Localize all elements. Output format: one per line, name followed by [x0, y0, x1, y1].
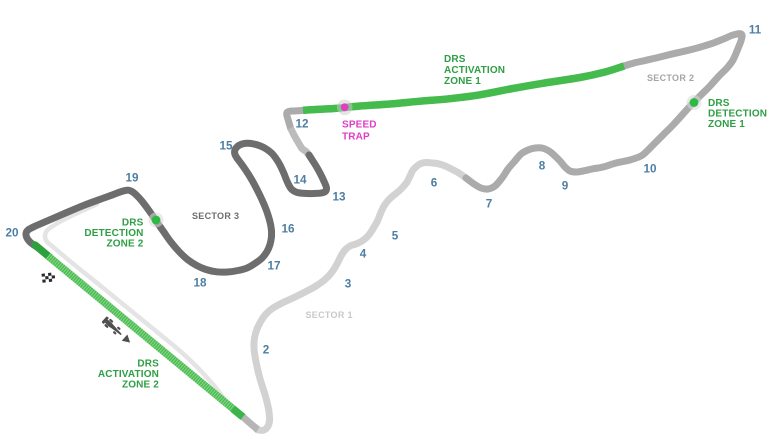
- svg-text:8: 8: [539, 159, 546, 172]
- svg-text:TRAP: TRAP: [342, 131, 370, 142]
- svg-text:19: 19: [125, 171, 139, 184]
- svg-text:12: 12: [295, 117, 309, 130]
- svg-text:10: 10: [643, 162, 657, 175]
- svg-text:DETECTION: DETECTION: [708, 109, 767, 120]
- svg-text:11: 11: [749, 23, 762, 36]
- svg-text:3: 3: [345, 277, 352, 290]
- svg-text:DRS: DRS: [137, 359, 159, 370]
- svg-text:6: 6: [431, 176, 438, 189]
- svg-text:ZONE 1: ZONE 1: [444, 76, 481, 87]
- svg-text:20: 20: [5, 226, 19, 239]
- svg-text:ZONE 2: ZONE 2: [122, 380, 159, 391]
- svg-text:17: 17: [267, 259, 280, 272]
- svg-text:9: 9: [562, 179, 569, 192]
- svg-text:SECTOR 3: SECTOR 3: [192, 211, 239, 221]
- svg-text:15: 15: [219, 139, 233, 152]
- svg-text:ZONE 1: ZONE 1: [708, 119, 745, 130]
- svg-text:7: 7: [486, 197, 493, 210]
- svg-text:SECTOR 2: SECTOR 2: [647, 73, 694, 83]
- svg-text:SECTOR 1: SECTOR 1: [306, 310, 353, 320]
- svg-text:ZONE 2: ZONE 2: [106, 238, 143, 249]
- svg-text:DRS: DRS: [708, 98, 730, 109]
- svg-text:13: 13: [332, 190, 346, 203]
- svg-text:SPEED: SPEED: [342, 119, 377, 130]
- svg-text:16: 16: [281, 222, 295, 235]
- svg-text:DRS: DRS: [444, 54, 466, 65]
- svg-text:ACTIVATION: ACTIVATION: [444, 65, 505, 76]
- svg-text:DRS: DRS: [122, 218, 144, 229]
- svg-text:ACTIVATION: ACTIVATION: [98, 369, 159, 380]
- svg-text:2: 2: [263, 343, 270, 356]
- svg-text:DETECTION: DETECTION: [84, 228, 143, 239]
- svg-text:4: 4: [360, 247, 367, 260]
- svg-text:14: 14: [293, 173, 307, 186]
- svg-text:5: 5: [392, 229, 399, 242]
- svg-text:18: 18: [193, 276, 207, 289]
